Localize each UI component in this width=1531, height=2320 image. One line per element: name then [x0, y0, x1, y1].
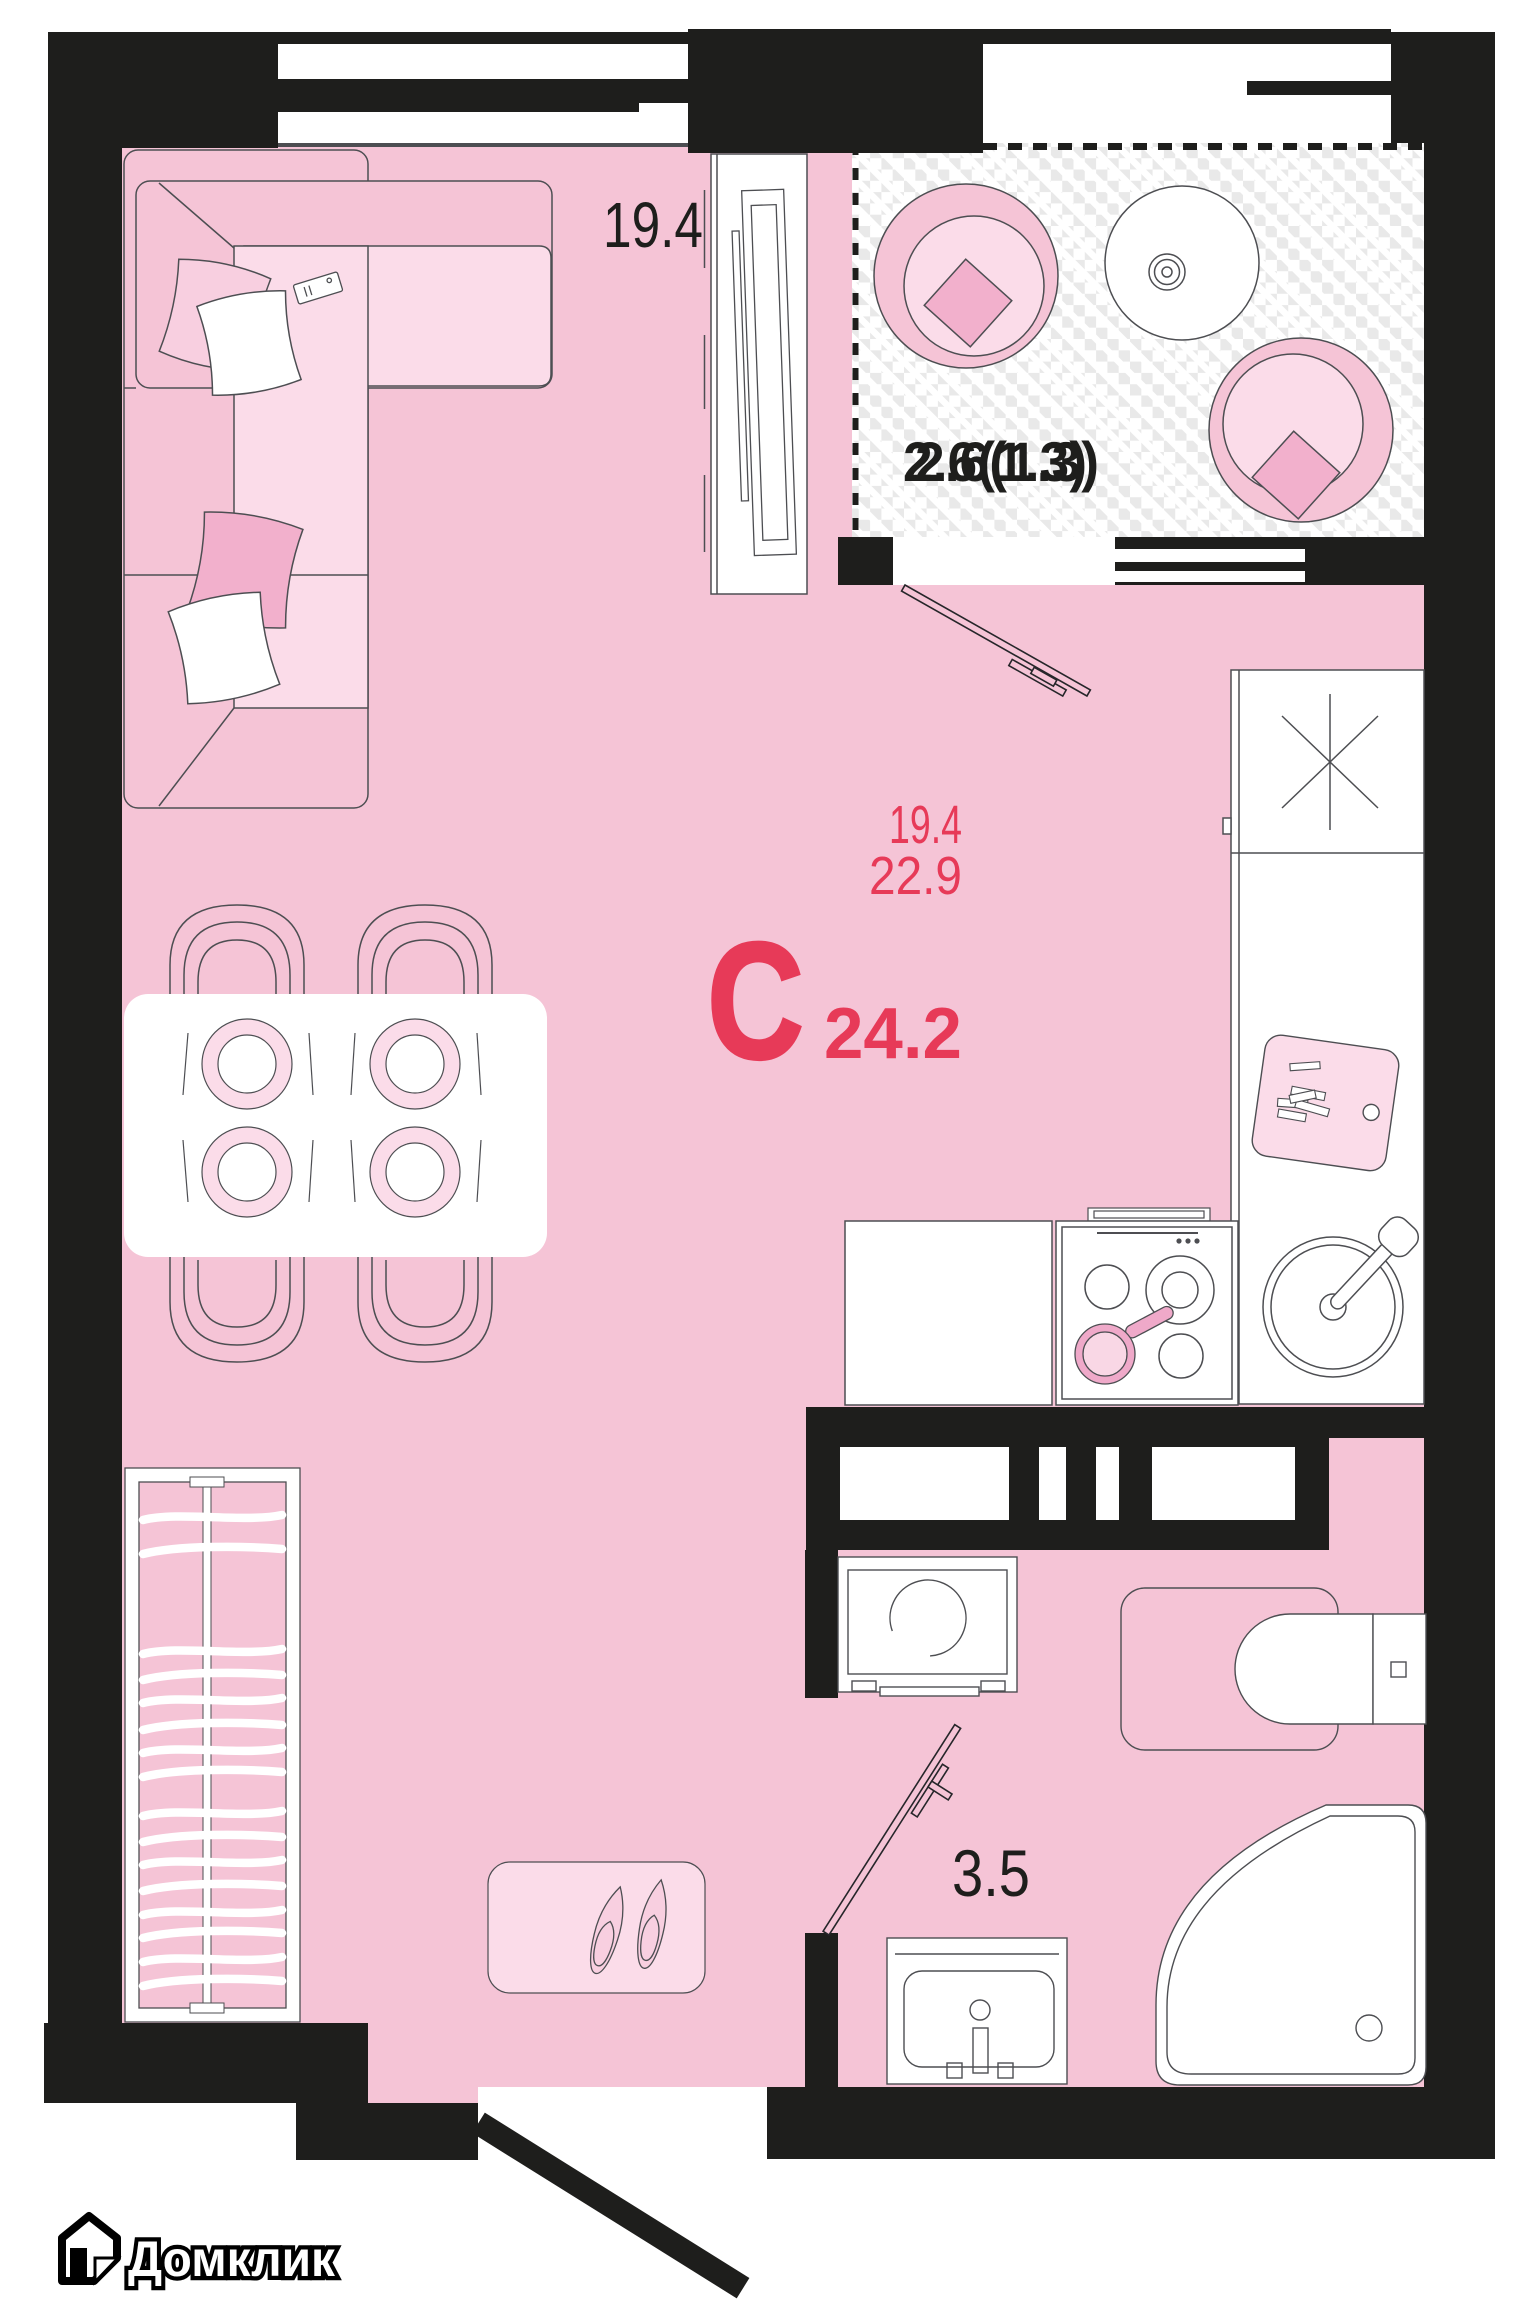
svg-text:2.6(1.3): 2.6(1.3) [915, 430, 1099, 493]
svg-text:24.2: 24.2 [824, 994, 962, 1074]
svg-text:Домклик: Домклик [128, 2231, 336, 2287]
svg-text:С: С [707, 909, 804, 1094]
svg-text:22.9: 22.9 [869, 846, 962, 906]
svg-text:3.5: 3.5 [952, 1836, 1030, 1910]
svg-text:19.4: 19.4 [603, 189, 703, 261]
